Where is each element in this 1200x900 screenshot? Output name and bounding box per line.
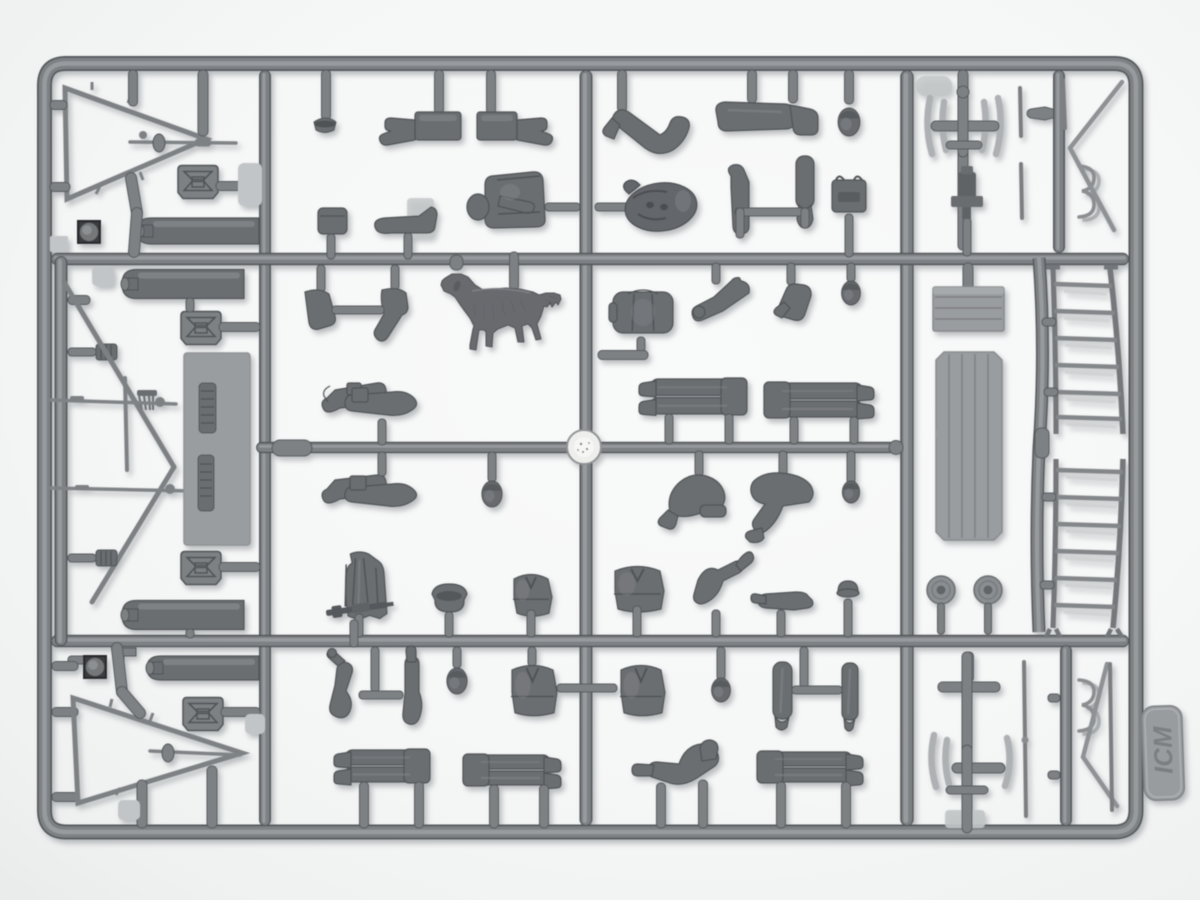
svg-text:ICM: ICM — [1147, 724, 1179, 774]
